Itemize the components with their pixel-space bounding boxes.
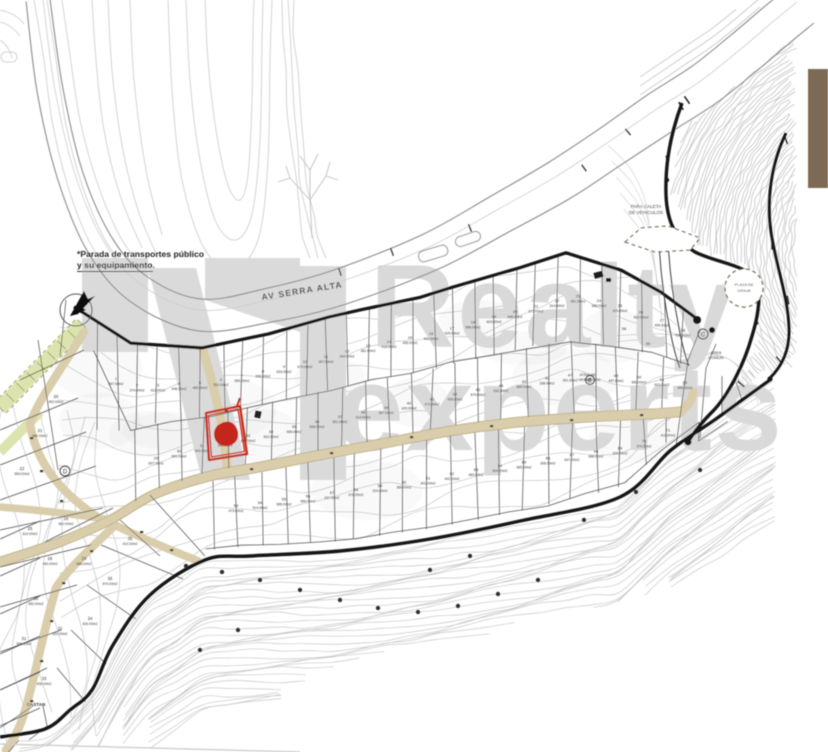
svg-text:64: 64 [498, 463, 503, 468]
svg-text:492.00m2: 492.00m2 [48, 400, 63, 404]
svg-text:CASTAN: CASTAN [27, 702, 45, 707]
svg-text:10: 10 [303, 359, 308, 364]
svg-text:485.00m2: 485.00m2 [192, 386, 207, 390]
svg-text:23: 23 [576, 294, 581, 299]
svg-text:20: 20 [513, 309, 518, 314]
svg-text:603.00m2: 603.00m2 [654, 383, 669, 387]
svg-text:502.00m2: 502.00m2 [263, 435, 278, 439]
svg-text:30: 30 [34, 596, 39, 601]
svg-text:40: 40 [407, 401, 412, 406]
svg-text:y su equipamiento.: y su equipamiento. [77, 260, 155, 270]
svg-text:596.00m2: 596.00m2 [255, 375, 270, 379]
svg-text:26: 26 [64, 516, 69, 521]
svg-text:462.00m2: 462.00m2 [633, 316, 648, 320]
svg-text:61: 61 [426, 475, 431, 480]
svg-text:27: 27 [660, 318, 665, 323]
svg-text:33: 33 [42, 676, 47, 681]
svg-text:62: 62 [450, 471, 455, 476]
svg-text:656.00m2: 656.00m2 [677, 386, 692, 390]
svg-text:41: 41 [430, 396, 435, 401]
svg-text:59: 59 [378, 483, 383, 488]
svg-text:338.00m2: 338.00m2 [539, 382, 554, 386]
svg-text:42: 42 [453, 391, 458, 396]
svg-text:381.00m2: 381.00m2 [360, 349, 375, 353]
svg-text:65: 65 [522, 459, 527, 464]
svg-text:473.00m2: 473.00m2 [228, 509, 243, 513]
svg-text:425.00m2: 425.00m2 [612, 309, 627, 313]
svg-text:632.00m2: 632.00m2 [493, 389, 508, 393]
svg-text:408.00m2: 408.00m2 [36, 682, 51, 686]
svg-text:VERDE: VERDE [578, 377, 592, 382]
svg-text:58: 58 [622, 326, 627, 331]
svg-text:45: 45 [522, 379, 527, 384]
svg-text:550.00m2: 550.00m2 [631, 381, 646, 385]
svg-text:388.00m2: 388.00m2 [591, 304, 606, 308]
svg-text:520.00m2: 520.00m2 [52, 632, 67, 636]
svg-text:28: 28 [681, 328, 686, 333]
svg-text:522.00m2: 522.00m2 [213, 383, 228, 387]
svg-text:19: 19 [492, 314, 497, 319]
svg-text:337.00m2: 337.00m2 [108, 382, 123, 386]
svg-text:678.00m2: 678.00m2 [348, 493, 363, 497]
svg-text:370.00m2: 370.00m2 [636, 444, 651, 448]
svg-text:554.00m2: 554.00m2 [14, 472, 29, 476]
svg-text:44: 44 [499, 383, 504, 388]
svg-text:28: 28 [48, 556, 53, 561]
svg-text:25: 25 [28, 526, 33, 531]
svg-text:499.00m2: 499.00m2 [654, 324, 669, 328]
svg-text:497.00m2: 497.00m2 [608, 379, 623, 383]
svg-text:430.00m2: 430.00m2 [82, 622, 97, 626]
svg-text:637.00m2: 637.00m2 [324, 496, 339, 500]
svg-text:31: 31 [22, 636, 27, 641]
svg-text:411.00m2: 411.00m2 [661, 434, 676, 438]
svg-text:36: 36 [128, 536, 133, 541]
svg-text:360.00m2: 360.00m2 [396, 485, 411, 489]
svg-text:314.00m2: 314.00m2 [355, 415, 370, 419]
svg-text:DE VEHICULOS: DE VEHICULOS [629, 210, 663, 215]
svg-text:374.00m2: 374.00m2 [129, 389, 144, 393]
svg-text:63: 63 [474, 467, 479, 472]
svg-text:21: 21 [38, 428, 43, 433]
svg-text:529.00m2: 529.00m2 [444, 331, 459, 335]
svg-text:420.00m2: 420.00m2 [401, 407, 416, 411]
svg-text:442.00m2: 442.00m2 [444, 477, 459, 481]
svg-text:677.00m2: 677.00m2 [528, 309, 543, 313]
svg-text:18: 18 [471, 320, 476, 325]
svg-text:57: 57 [330, 490, 335, 495]
svg-text:391.00m2: 391.00m2 [562, 378, 577, 382]
svg-text:14: 14 [387, 339, 392, 344]
svg-text:56: 56 [306, 493, 311, 498]
svg-text:32: 32 [58, 626, 63, 631]
svg-text:559.00m2: 559.00m2 [234, 379, 249, 383]
svg-text:53: 53 [234, 503, 239, 508]
svg-text:401.00m2: 401.00m2 [420, 481, 435, 485]
svg-text:PARA CALETA: PARA CALETA [631, 204, 663, 209]
svg-text:20: 20 [54, 394, 59, 399]
svg-text:2: 2 [136, 383, 139, 388]
svg-text:450.00m2: 450.00m2 [42, 562, 57, 566]
svg-text:344.00m2: 344.00m2 [339, 355, 354, 359]
svg-text:51: 51 [660, 377, 665, 382]
svg-text:50: 50 [637, 375, 642, 380]
svg-text:329.00m2: 329.00m2 [612, 451, 627, 455]
svg-text:43: 43 [476, 387, 481, 392]
svg-text:*Parada de transportes público: *Parada de transportes público [77, 249, 204, 259]
svg-text:610.00m2: 610.00m2 [22, 532, 37, 536]
svg-text:565.00m2: 565.00m2 [516, 465, 531, 469]
svg-text:307.00m2: 307.00m2 [318, 360, 333, 364]
svg-text:568.00m2: 568.00m2 [16, 642, 31, 646]
svg-text:49: 49 [614, 373, 619, 378]
svg-text:36: 36 [315, 419, 320, 424]
svg-text:17: 17 [450, 325, 455, 330]
svg-text:12: 12 [345, 349, 350, 354]
svg-text:31: 31 [200, 443, 205, 448]
svg-text:35: 35 [292, 424, 297, 429]
svg-text:637.00m2: 637.00m2 [148, 462, 163, 466]
svg-text:16: 16 [429, 331, 434, 336]
svg-text:688.00m2: 688.00m2 [76, 562, 91, 566]
svg-text:35: 35 [108, 576, 113, 581]
svg-text:54: 54 [258, 500, 263, 505]
svg-text:688.00m2: 688.00m2 [588, 455, 603, 459]
svg-text:68: 68 [594, 449, 599, 454]
svg-text:633.00m2: 633.00m2 [276, 370, 291, 374]
svg-text:24: 24 [597, 298, 602, 303]
svg-text:670.00m2: 670.00m2 [297, 365, 312, 369]
svg-text:71: 71 [666, 428, 671, 433]
svg-text:367.00m2: 367.00m2 [378, 411, 393, 415]
svg-text:34: 34 [88, 616, 93, 621]
svg-text:30: 30 [177, 448, 182, 453]
svg-text:411.00m2: 411.00m2 [151, 388, 166, 392]
svg-text:70: 70 [642, 438, 647, 443]
svg-text:60: 60 [402, 479, 407, 484]
svg-text:608.00m2: 608.00m2 [309, 425, 324, 429]
svg-text:D: D [63, 470, 68, 476]
svg-text:25: 25 [618, 303, 623, 308]
svg-text:319.00m2: 319.00m2 [372, 489, 387, 493]
svg-text:47: 47 [568, 372, 573, 377]
svg-text:536.00m2: 536.00m2 [675, 334, 690, 338]
svg-text:46: 46 [545, 376, 550, 381]
svg-text:PLAZA DE: PLAZA DE [734, 282, 753, 287]
svg-text:690.00m2: 690.00m2 [171, 454, 186, 458]
svg-text:455.00m2: 455.00m2 [402, 341, 417, 345]
svg-text:410.00m2: 410.00m2 [122, 542, 137, 546]
svg-text:58: 58 [354, 487, 359, 492]
svg-text:55: 55 [282, 497, 287, 502]
svg-text:492.00m2: 492.00m2 [423, 337, 438, 341]
svg-text:59: 59 [646, 341, 651, 346]
svg-text:579.00m2: 579.00m2 [470, 393, 485, 397]
svg-text:566.00m2: 566.00m2 [465, 326, 480, 330]
svg-text:351.00m2: 351.00m2 [570, 300, 585, 304]
svg-text:67: 67 [570, 452, 575, 457]
svg-text:38: 38 [361, 409, 366, 414]
svg-text:37: 37 [338, 414, 343, 419]
svg-text:COMUN: COMUN [708, 355, 723, 360]
svg-text:39: 39 [384, 405, 389, 410]
svg-text:418.00m2: 418.00m2 [381, 345, 396, 349]
svg-text:640.00m2: 640.00m2 [507, 315, 522, 319]
svg-text:606.00m2: 606.00m2 [540, 462, 555, 466]
svg-text:555.00m2: 555.00m2 [276, 503, 291, 507]
svg-text:13: 13 [366, 343, 371, 348]
svg-text:C: C [701, 333, 706, 339]
svg-text:524.00m2: 524.00m2 [492, 469, 507, 473]
svg-text:652.00m2: 652.00m2 [28, 602, 43, 606]
svg-text:69: 69 [618, 445, 623, 450]
svg-text:52: 52 [683, 380, 688, 385]
svg-text:685.00m2: 685.00m2 [516, 385, 531, 389]
svg-text:314.00m2: 314.00m2 [549, 304, 564, 308]
svg-text:29: 29 [82, 556, 87, 561]
svg-text:8: 8 [262, 369, 265, 374]
svg-text:22: 22 [20, 466, 25, 471]
svg-text:21: 21 [534, 303, 539, 308]
svg-text:596.00m2: 596.00m2 [300, 499, 315, 503]
svg-text:29: 29 [154, 456, 159, 461]
svg-text:9: 9 [283, 364, 286, 369]
svg-text:34: 34 [269, 429, 274, 434]
svg-text:647.00m2: 647.00m2 [564, 458, 579, 462]
svg-text:680.00m2: 680.00m2 [32, 434, 47, 438]
svg-text:603.00m2: 603.00m2 [486, 320, 501, 324]
svg-text:514.00m2: 514.00m2 [252, 506, 267, 510]
svg-text:33: 33 [246, 433, 251, 438]
svg-text:22: 22 [555, 298, 560, 303]
svg-text:526.00m2: 526.00m2 [447, 397, 462, 401]
svg-text:483.00m2: 483.00m2 [468, 473, 483, 477]
svg-text:3: 3 [157, 382, 160, 387]
svg-text:15: 15 [408, 335, 413, 340]
svg-text:26: 26 [639, 310, 644, 315]
svg-text:570.00m2: 570.00m2 [102, 582, 117, 586]
svg-text:555.00m2: 555.00m2 [286, 430, 301, 434]
svg-text:448.00m2: 448.00m2 [171, 387, 186, 391]
svg-text:VIRAJE: VIRAJE [737, 288, 751, 293]
svg-text:473.00m2: 473.00m2 [424, 402, 439, 406]
svg-text:66: 66 [546, 456, 551, 461]
svg-text:661.00m2: 661.00m2 [332, 420, 347, 424]
svg-text:562.00m2: 562.00m2 [58, 522, 73, 526]
